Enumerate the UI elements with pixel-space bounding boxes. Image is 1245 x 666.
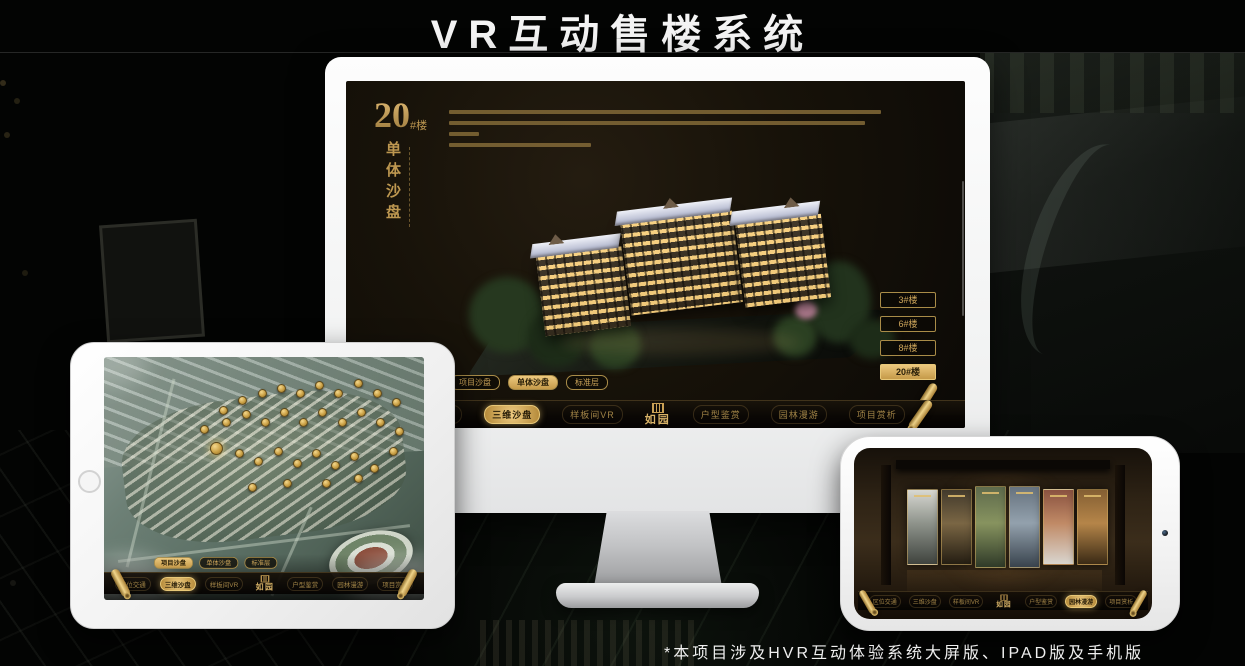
- brand-logo-text: 如园: [256, 584, 275, 592]
- floor-button-8#楼[interactable]: 8#楼: [880, 340, 936, 356]
- nav-item-三维沙盘[interactable]: 三维沙盘: [160, 577, 196, 591]
- brand-logo: 如园: [256, 575, 275, 592]
- tablet-screen[interactable]: 项目沙盘单体沙盘标准层 区位交通三维沙盘样板间VR如园户型鉴赏园林漫游项目赏析: [104, 357, 424, 600]
- floor-button-6#楼[interactable]: 6#楼: [880, 316, 936, 332]
- phone-front-camera: [1162, 530, 1168, 536]
- building-marker[interactable]: [338, 418, 347, 427]
- background-aerial-photo: [985, 53, 1245, 453]
- gallery-card-caption: [1050, 495, 1066, 497]
- blossom-blob: [795, 301, 817, 319]
- view-tab-标准层[interactable]: 标准层: [566, 375, 608, 390]
- nav-item-项目赏析[interactable]: 项目赏析: [849, 405, 905, 424]
- building-marker[interactable]: [334, 389, 343, 398]
- building-marker[interactable]: [261, 418, 270, 427]
- main-nav-bar: 区位交通三维沙盘样板间VR如园户型鉴赏园林漫游项目赏析: [104, 572, 424, 594]
- description-text-line: [449, 121, 865, 125]
- gallery-card-caption: [1016, 492, 1032, 494]
- building-center: [621, 211, 743, 316]
- gallery-card-caption: [914, 495, 930, 497]
- background-gold-specks: [0, 80, 6, 86]
- nav-item-三维沙盘[interactable]: 三维沙盘: [909, 595, 941, 608]
- unit-subtitle-wrap: 单体沙盘: [374, 141, 427, 233]
- unit-title-block: 20#楼 单体沙盘: [374, 97, 427, 233]
- description-text-line: [449, 143, 591, 147]
- interior-column: [881, 465, 891, 585]
- building-marker[interactable]: [389, 447, 398, 456]
- view-tab-单体沙盘[interactable]: 单体沙盘: [508, 375, 558, 390]
- view-tab-group: 项目沙盘单体沙盘标准层: [154, 557, 277, 569]
- nav-item-三维沙盘[interactable]: 三维沙盘: [484, 405, 540, 424]
- nav-item-户型鉴赏[interactable]: 户型鉴赏: [287, 577, 323, 591]
- monitor-stand-neck: [594, 511, 722, 587]
- view-tab-单体沙盘[interactable]: 单体沙盘: [199, 557, 238, 569]
- phone-device: 区位交通三维沙盘样板间VR如园户型鉴赏园林漫游项目赏析: [840, 436, 1180, 631]
- ground-glow: [561, 329, 801, 355]
- nav-item-户型鉴赏[interactable]: 户型鉴赏: [693, 405, 749, 424]
- brand-logo-text: 如园: [645, 415, 671, 426]
- view-tab-项目沙盘[interactable]: 项目沙盘: [154, 557, 193, 569]
- brand-seal-icon: [652, 403, 664, 413]
- nav-item-样板间VR[interactable]: 样板间VR: [949, 595, 983, 608]
- building-marker[interactable]: [254, 457, 263, 466]
- building-model: [532, 194, 831, 321]
- interior-roof-beam: [896, 460, 1111, 469]
- gallery-card-5[interactable]: [1043, 489, 1074, 565]
- building-marker[interactable]: [354, 474, 363, 483]
- roof-gable: [783, 196, 800, 208]
- nav-item-园林漫游[interactable]: 园林漫游: [771, 405, 827, 424]
- background-gray-band: [985, 96, 1245, 273]
- unit-subtitle-english-line: [409, 147, 410, 227]
- description-text-line: [449, 132, 479, 136]
- brand-seal-icon: [261, 575, 270, 582]
- view-tab-group: 项目沙盘单体沙盘标准层: [450, 375, 608, 390]
- gallery-card-6[interactable]: [1077, 489, 1108, 565]
- building-marker[interactable]: [357, 408, 366, 417]
- nav-item-样板间VR[interactable]: 样板间VR: [205, 577, 244, 591]
- unit-number: 20: [374, 97, 410, 133]
- footnote-text: *本项目涉及HVR互动体验系统大屏版、IPAD版及手机版: [664, 639, 1144, 663]
- building-marker[interactable]: [274, 447, 283, 456]
- building-marker[interactable]: [354, 379, 363, 388]
- building-wing-right: [735, 214, 831, 308]
- building-roof: [530, 233, 621, 258]
- building-marker[interactable]: [376, 418, 385, 427]
- description-paragraph: [449, 110, 881, 154]
- tablet-home-button[interactable]: [78, 470, 101, 493]
- background-river-curve: [998, 131, 1157, 370]
- main-nav-bar: 区位交通三维沙盘样板间VR如园户型鉴赏园林漫游项目赏析: [858, 591, 1148, 610]
- phone-screen[interactable]: 区位交通三维沙盘样板间VR如园户型鉴赏园林漫游项目赏析: [854, 448, 1152, 619]
- building-roof: [730, 201, 821, 226]
- nav-item-户型鉴赏[interactable]: 户型鉴赏: [1025, 595, 1057, 608]
- tablet-device: 项目沙盘单体沙盘标准层 区位交通三维沙盘样板间VR如园户型鉴赏园林漫游项目赏析: [70, 342, 455, 629]
- background-trees: [980, 53, 1245, 113]
- building-marker[interactable]: [258, 389, 267, 398]
- building-marker[interactable]: [322, 479, 331, 488]
- background-picture-frame: [99, 219, 205, 344]
- building-marker[interactable]: [200, 425, 209, 434]
- brand-logo: 如园: [645, 403, 671, 426]
- brand-seal-icon: [1001, 594, 1008, 600]
- unit-subtitle: 单体沙盘: [382, 141, 403, 233]
- page-title: VR互动售楼系统: [0, 2, 1245, 60]
- building-marker[interactable]: [210, 442, 223, 455]
- nav-item-样板间VR[interactable]: 样板间VR: [562, 405, 623, 424]
- roof-gable: [547, 233, 564, 245]
- building-marker[interactable]: [373, 389, 382, 398]
- floor-button-3#楼[interactable]: 3#楼: [880, 292, 936, 308]
- building-marker[interactable]: [280, 408, 289, 417]
- monitor-stand-base: [556, 583, 759, 608]
- gallery-card-2[interactable]: [941, 489, 972, 565]
- gallery-card-1[interactable]: [907, 489, 938, 565]
- brand-logo: 如园: [996, 594, 1012, 608]
- floor-button-20#楼[interactable]: 20#楼: [880, 364, 936, 380]
- brand-logo-text: 如园: [996, 601, 1012, 608]
- gallery-card-3[interactable]: [975, 486, 1006, 568]
- building-marker[interactable]: [296, 389, 305, 398]
- nav-item-园林漫游[interactable]: 园林漫游: [1065, 595, 1097, 608]
- gallery-card-4[interactable]: [1009, 486, 1040, 568]
- building-marker[interactable]: [277, 384, 286, 393]
- building-marker[interactable]: [283, 479, 292, 488]
- description-text-line: [449, 110, 881, 114]
- gallery-card-caption: [948, 495, 964, 497]
- interior-column: [1115, 465, 1125, 585]
- building-wing-left: [536, 246, 631, 336]
- screen-edge-highlight: [962, 181, 964, 316]
- building-marker[interactable]: [219, 406, 228, 415]
- building-model-scene[interactable]: [451, 169, 891, 374]
- view-tab-项目沙盘[interactable]: 项目沙盘: [450, 375, 500, 390]
- building-marker[interactable]: [299, 418, 308, 427]
- scene-gallery: [907, 486, 1108, 568]
- gallery-card-caption: [1084, 495, 1100, 497]
- gallery-card-caption: [982, 492, 998, 494]
- building-marker[interactable]: [293, 459, 302, 468]
- view-tab-标准层[interactable]: 标准层: [244, 557, 277, 569]
- floor-button-group: 3#楼6#楼8#楼20#楼: [880, 292, 936, 380]
- unit-suffix: #楼: [410, 120, 427, 132]
- building-roof: [615, 197, 733, 226]
- roof-gable: [662, 197, 679, 209]
- nav-item-园林漫游[interactable]: 园林漫游: [332, 577, 368, 591]
- building-marker[interactable]: [370, 464, 379, 473]
